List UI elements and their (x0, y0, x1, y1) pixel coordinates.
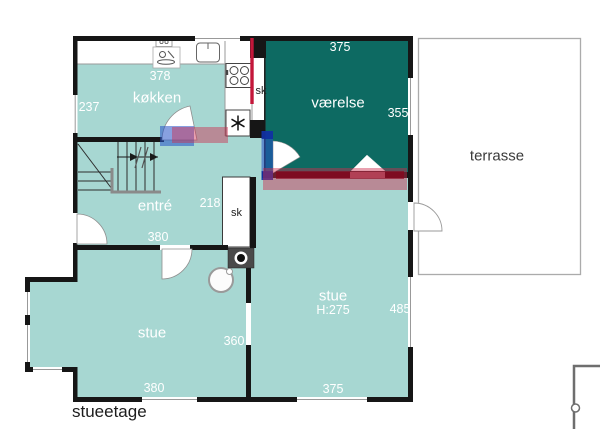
dim-stue-left-right: 360 (224, 334, 245, 348)
window (73, 95, 78, 133)
sink-icon (197, 43, 220, 62)
room-label-stue-left: stue (138, 325, 166, 342)
dim-vaerelse-right: 355 (388, 106, 409, 120)
floor-title: stueetage (72, 402, 147, 421)
wood-stove-icon (209, 268, 233, 292)
dim-entre-corridor: 218 (200, 196, 221, 210)
room-stue-right-floor-lower (251, 248, 408, 400)
dim-kokken-top: 378 (150, 69, 171, 83)
dim-stue-left-bottom: 380 (144, 381, 165, 395)
adjacent-structure (572, 366, 600, 429)
floorplan-canvas: 378 køkken 237 375 værelse 355 sk sk ent… (0, 0, 600, 429)
dishwasher-icon (153, 47, 180, 68)
dim-stue-right-bottom: 375 (323, 382, 344, 396)
red-overlay-vaerelse-wall-deep (276, 171, 404, 179)
dim-entre-bottom: 380 (148, 230, 169, 244)
window (195, 36, 240, 41)
cooktop-icon (226, 64, 252, 88)
red-overlay-kitchen-door (172, 127, 228, 143)
window (33, 367, 62, 372)
dim-kokken-left: 237 (79, 100, 100, 114)
room-label-terrasse: terrasse (470, 148, 524, 165)
blue-overlay-cap-top (262, 131, 274, 139)
window (142, 397, 197, 402)
chimney-icon (228, 248, 254, 268)
room-label-entre: entré (138, 198, 172, 215)
freezer-snowflake-icon (226, 110, 250, 136)
closet-label-hall: sk (231, 207, 243, 219)
ceiling-height-stue-right: H:275 (316, 303, 349, 317)
window (25, 325, 30, 362)
closet-label-kitchen: sk (256, 85, 268, 97)
window (297, 397, 367, 402)
dim-stue-right-right: 485 (390, 302, 411, 316)
room-label-stue-right: stue (319, 288, 347, 305)
dim-vaerelse-top: 375 (330, 40, 351, 54)
room-stue-left-bay-floor (30, 282, 77, 367)
radiator-line (250, 38, 253, 104)
floorplan-drawing: 378 køkken 237 375 værelse 355 sk sk ent… (0, 0, 600, 429)
window (25, 292, 30, 315)
window (408, 78, 413, 135)
room-label-vaerelse: værelse (311, 95, 364, 112)
room-label-kokken: køkken (133, 90, 181, 107)
